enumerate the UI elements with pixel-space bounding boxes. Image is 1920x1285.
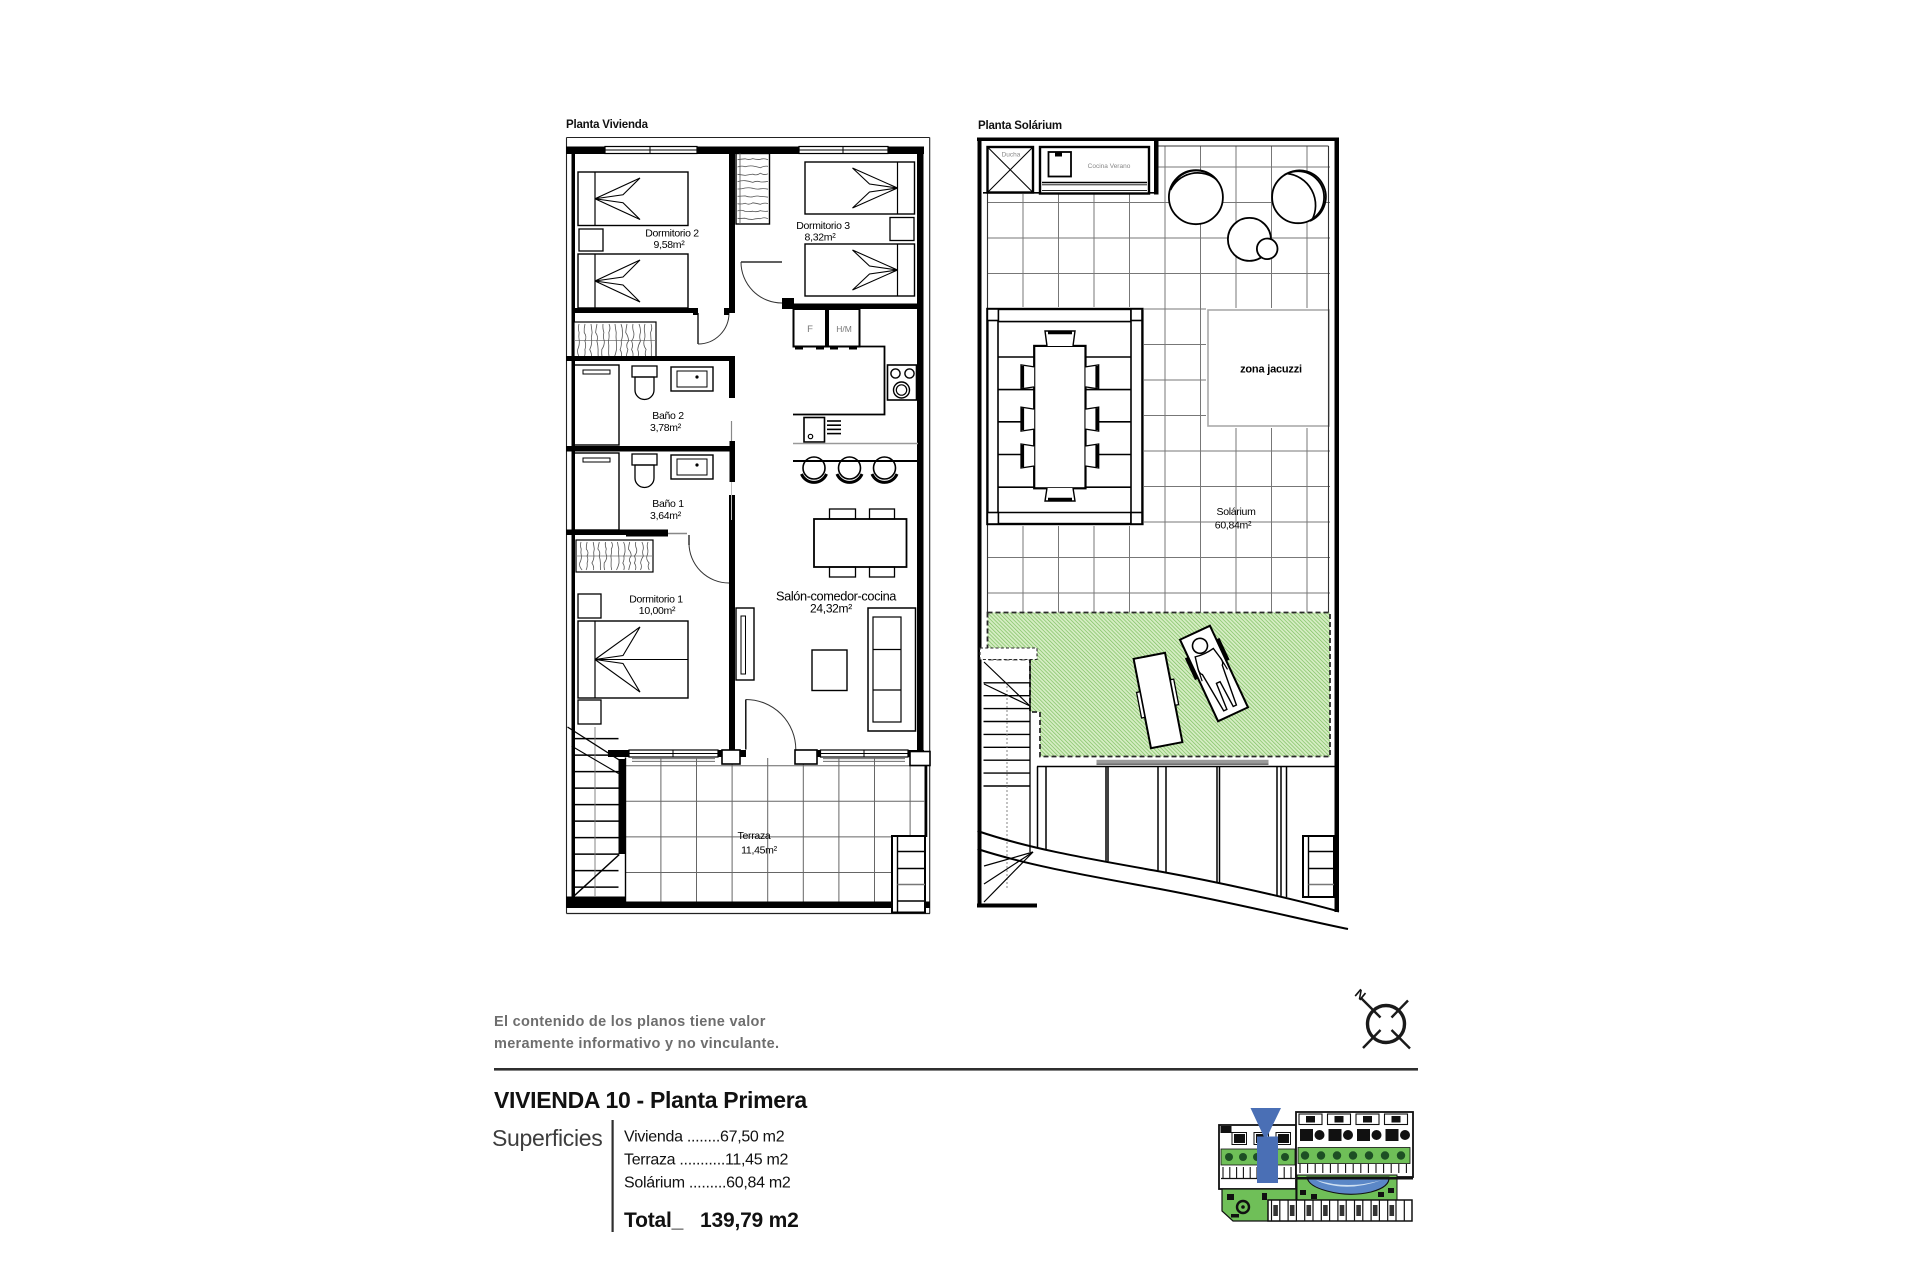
svg-text:Terraza ...........11,45 m2: Terraza ...........11,45 m2 [624,1152,789,1169]
svg-text:3,64m²: 3,64m² [650,510,682,522]
svg-text:F: F [807,324,813,335]
svg-text:Solárium: Solárium [1216,506,1256,518]
svg-text:Planta Vivienda: Planta Vivienda [566,119,649,131]
svg-text:Dormitorio 1: Dormitorio 1 [629,594,683,606]
svg-text:Ducha: Ducha [1002,152,1021,159]
svg-text:60,84m²: 60,84m² [1215,520,1252,532]
svg-text:Superficies: Superficies [492,1125,602,1151]
svg-text:Total_: Total_ [624,1209,684,1232]
svg-text:Baño 1: Baño 1 [652,498,684,510]
svg-text:El contenido de los planos tie: El contenido de los planos tiene valor [494,1014,766,1030]
svg-text:Dormitorio 3: Dormitorio 3 [796,220,850,232]
svg-text:VIVIENDA 10 - Planta Primera: VIVIENDA 10 - Planta Primera [494,1087,807,1113]
svg-text:Planta Solárium: Planta Solárium [978,120,1062,132]
svg-text:3,78m²: 3,78m² [650,422,682,434]
svg-text:24,32m²: 24,32m² [810,602,852,616]
svg-text:9,58m²: 9,58m² [654,239,686,251]
svg-text:Vivienda ........67,50 m2: Vivienda ........67,50 m2 [624,1129,785,1146]
svg-text:Solárium .........60,84 m2: Solárium .........60,84 m2 [624,1175,791,1192]
svg-text:Terraza: Terraza [738,830,771,842]
svg-text:zona jacuzzi: zona jacuzzi [1240,364,1302,376]
svg-text:Cocina Verano: Cocina Verano [1088,163,1131,170]
svg-text:139,79 m2: 139,79 m2 [700,1209,799,1232]
svg-text:Baño 2: Baño 2 [652,410,684,422]
svg-text:11,45m²: 11,45m² [741,845,777,857]
svg-text:8,32m²: 8,32m² [805,232,837,244]
svg-text:meramente informativo y no vin: meramente informativo y no vinculante. [494,1036,779,1052]
svg-text:H/M: H/M [836,324,852,334]
svg-text:10,00m²: 10,00m² [639,605,676,617]
svg-text:Dormitorio 2: Dormitorio 2 [645,228,699,240]
